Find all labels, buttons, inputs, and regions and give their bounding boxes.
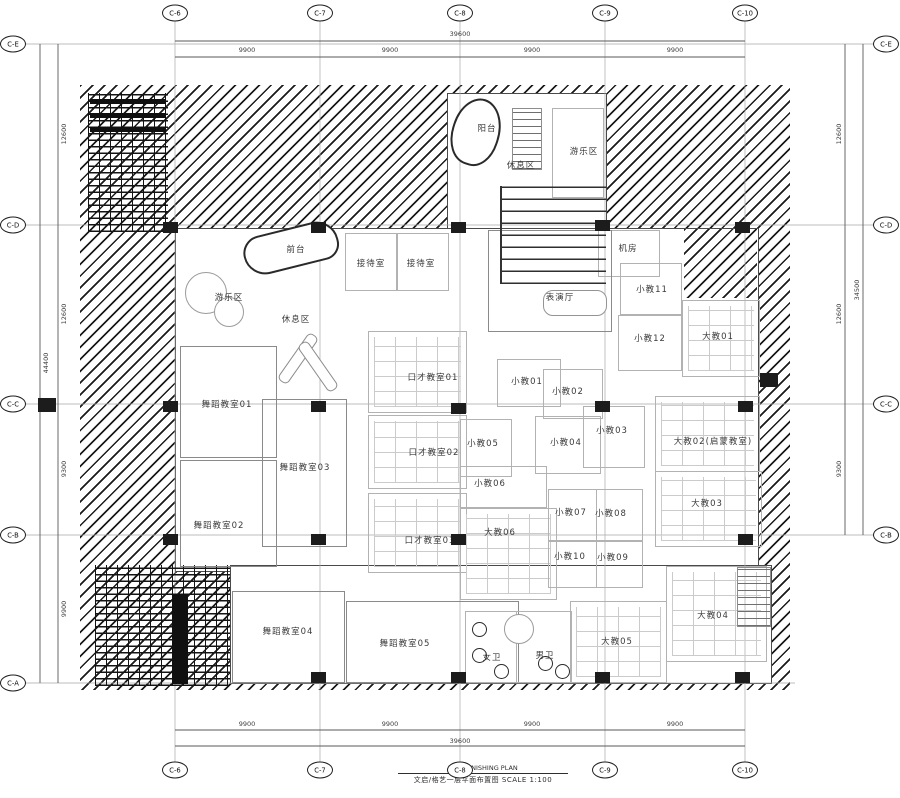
column-marker (738, 534, 753, 545)
room-label-reception1: 接待室 (357, 257, 386, 269)
room-label-dance01: 舞蹈教室01 (202, 398, 253, 410)
grid-bubble-left-cc: C-C (0, 396, 26, 413)
title-block: F1 FURNISHING PLAN 文启/格艺一层平面布置图 SCALE 1:… (398, 764, 568, 785)
column-marker (451, 534, 466, 545)
dim-bottom-seg4: 9900 (667, 720, 684, 728)
room-label-front-desk: 前台 (286, 243, 305, 255)
room-label-xj04: 小教04 (550, 436, 582, 448)
grid-bubble-top-c8: C-8 (447, 5, 473, 22)
dim-bottom-total: 39600 (450, 737, 471, 745)
grid-bubble-top-c7: C-7 (307, 5, 333, 22)
grid-bubble-right-cb: C-B (873, 527, 899, 544)
dim-bottom-seg2: 9900 (382, 720, 399, 728)
grid-bubble-left-cb: C-B (0, 527, 26, 544)
column-marker (595, 672, 610, 683)
room-label-xj02: 小教02 (552, 385, 584, 397)
dim-top-total: 39600 (450, 30, 471, 38)
grid-bubble-right-cc: C-C (873, 396, 899, 413)
dim-right-seg1: 12600 (835, 124, 843, 145)
drawing-scale: SCALE 1:100 (502, 776, 552, 784)
room-label-rest-top: 休息区 (507, 159, 536, 171)
dim-top-seg2: 9900 (382, 46, 399, 54)
room-label-talk02: 口才教室02 (409, 446, 460, 458)
core-bar (90, 113, 166, 118)
room-label-play-left: 游乐区 (215, 291, 244, 303)
dim-bottom-seg1: 9900 (239, 720, 256, 728)
grid-bubble-left-cd: C-D (0, 217, 26, 234)
room-label-xj08: 小教08 (595, 507, 627, 519)
dim-left-seg4: 9900 (60, 601, 68, 618)
column-marker (311, 401, 326, 412)
room-xj10 (548, 541, 597, 588)
column-marker (163, 222, 178, 233)
column-marker (451, 403, 466, 414)
toilet-fixture (555, 664, 570, 679)
dim-right-total: 34500 (853, 280, 861, 301)
column-marker (163, 534, 178, 545)
toilet-fixture (494, 664, 509, 679)
grid-bubble-bottom-c9: C-9 (592, 762, 618, 779)
elevation-marker-left (38, 398, 56, 412)
grid-bubble-top-c10: C-10 (732, 5, 758, 22)
room-label-talk03: 口才教室03 (405, 534, 456, 546)
room-label-xj01: 小教01 (511, 375, 543, 387)
room-label-xj05: 小教05 (467, 437, 499, 449)
grid-bubble-top-c6: C-6 (162, 5, 188, 22)
room-label-xj10: 小教10 (554, 550, 586, 562)
room-label-dance02: 舞蹈教室02 (194, 519, 245, 531)
drawing-title-cn: 文启/格艺一层平面布置图 SCALE 1:100 (398, 775, 568, 785)
room-label-theater: 表演厅 (546, 291, 575, 303)
stair-bottom-right (737, 567, 771, 627)
room-label-talk01: 口才教室01 (408, 371, 459, 383)
dim-bottom-seg3: 9900 (524, 720, 541, 728)
column-marker (735, 222, 750, 233)
column-marker (595, 401, 610, 412)
room-dance02 (180, 460, 277, 567)
room-label-dj04: 大教04 (697, 609, 729, 621)
room-label-wc-female: 女卫 (482, 651, 501, 663)
room-label-dance04: 舞蹈教室04 (263, 625, 314, 637)
room-label-dance03: 舞蹈教室03 (280, 461, 331, 473)
room-label-xj09: 小教09 (597, 551, 629, 563)
room-label-machine: 机房 (618, 242, 637, 254)
column-marker (735, 672, 750, 683)
grid-bubble-right-ce: C-E (873, 36, 899, 53)
room-label-dj02: 大教02(启蒙教室) (674, 435, 752, 447)
dim-right-seg3: 9300 (835, 461, 843, 478)
grid-bubble-bottom-c6: C-6 (162, 762, 188, 779)
room-talk03 (368, 493, 467, 573)
grid-bubble-top-c9: C-9 (592, 5, 618, 22)
room-label-xj11: 小教11 (636, 283, 668, 295)
room-label-dj01: 大教01 (702, 330, 734, 342)
dim-top-seg1: 9900 (239, 46, 256, 54)
grid-bubble-bottom-c7: C-7 (307, 762, 333, 779)
theater-tiered-seating (500, 186, 606, 284)
column-marker (163, 401, 178, 412)
toilet-fixture (472, 622, 487, 637)
drawing-title-en: F1 FURNISHING PLAN (398, 764, 568, 774)
room-label-xj06: 小教06 (474, 477, 506, 489)
column-marker (451, 222, 466, 233)
column-marker (311, 534, 326, 545)
column-marker (311, 672, 326, 683)
core-bar (90, 127, 166, 132)
room-xj03 (583, 406, 645, 468)
dim-left-total: 44400 (42, 353, 50, 374)
core-bar (90, 99, 166, 104)
room-label-dj06: 大教06 (484, 526, 516, 538)
column-marker (311, 222, 326, 233)
grid-bubble-bottom-c10: C-10 (732, 762, 758, 779)
room-label-balcony: 阳台 (477, 122, 496, 134)
dim-left-seg2: 12600 (60, 304, 68, 325)
column-marker (738, 401, 753, 412)
column-marker (451, 672, 466, 683)
dim-left-seg3: 9300 (60, 461, 68, 478)
floor-plan-canvas: C-6 C-7 C-8 C-9 C-10 C-6 C-7 C-8 C-9 C-1… (0, 0, 900, 798)
room-label-dj03: 大教03 (691, 497, 723, 509)
room-dj06 (460, 508, 557, 600)
core-bottom-left (95, 565, 230, 686)
grid-bubble-left-ca: C-A (0, 675, 26, 692)
column-marker (595, 220, 610, 231)
dim-top-seg4: 9900 (667, 46, 684, 54)
grid-bubble-left-ce: C-E (0, 36, 26, 53)
room-label-reception2: 接待室 (407, 257, 436, 269)
core-column-bar (172, 594, 188, 684)
dim-right-seg2: 12600 (835, 304, 843, 325)
elevation-marker-right (760, 373, 778, 387)
room-dance04 (232, 591, 345, 683)
room-label-xj07: 小教07 (555, 506, 587, 518)
room-label-wc-male: 男卫 (535, 649, 554, 661)
room-xj09 (596, 541, 643, 588)
room-label-rest-left: 休息区 (282, 313, 311, 325)
toilet-round-basin (504, 614, 534, 644)
room-label-xj03: 小教03 (596, 424, 628, 436)
dim-top-seg3: 9900 (524, 46, 541, 54)
grid-bubble-bottom-c8: C-8 (447, 762, 473, 779)
grid-bubble-right-cd: C-D (873, 217, 899, 234)
room-label-play-top: 游乐区 (570, 145, 599, 157)
room-label-xj12: 小教12 (634, 332, 666, 344)
dim-left-seg1: 12600 (60, 124, 68, 145)
room-label-dj05: 大教05 (601, 635, 633, 647)
room-label-dance05: 舞蹈教室05 (380, 637, 431, 649)
